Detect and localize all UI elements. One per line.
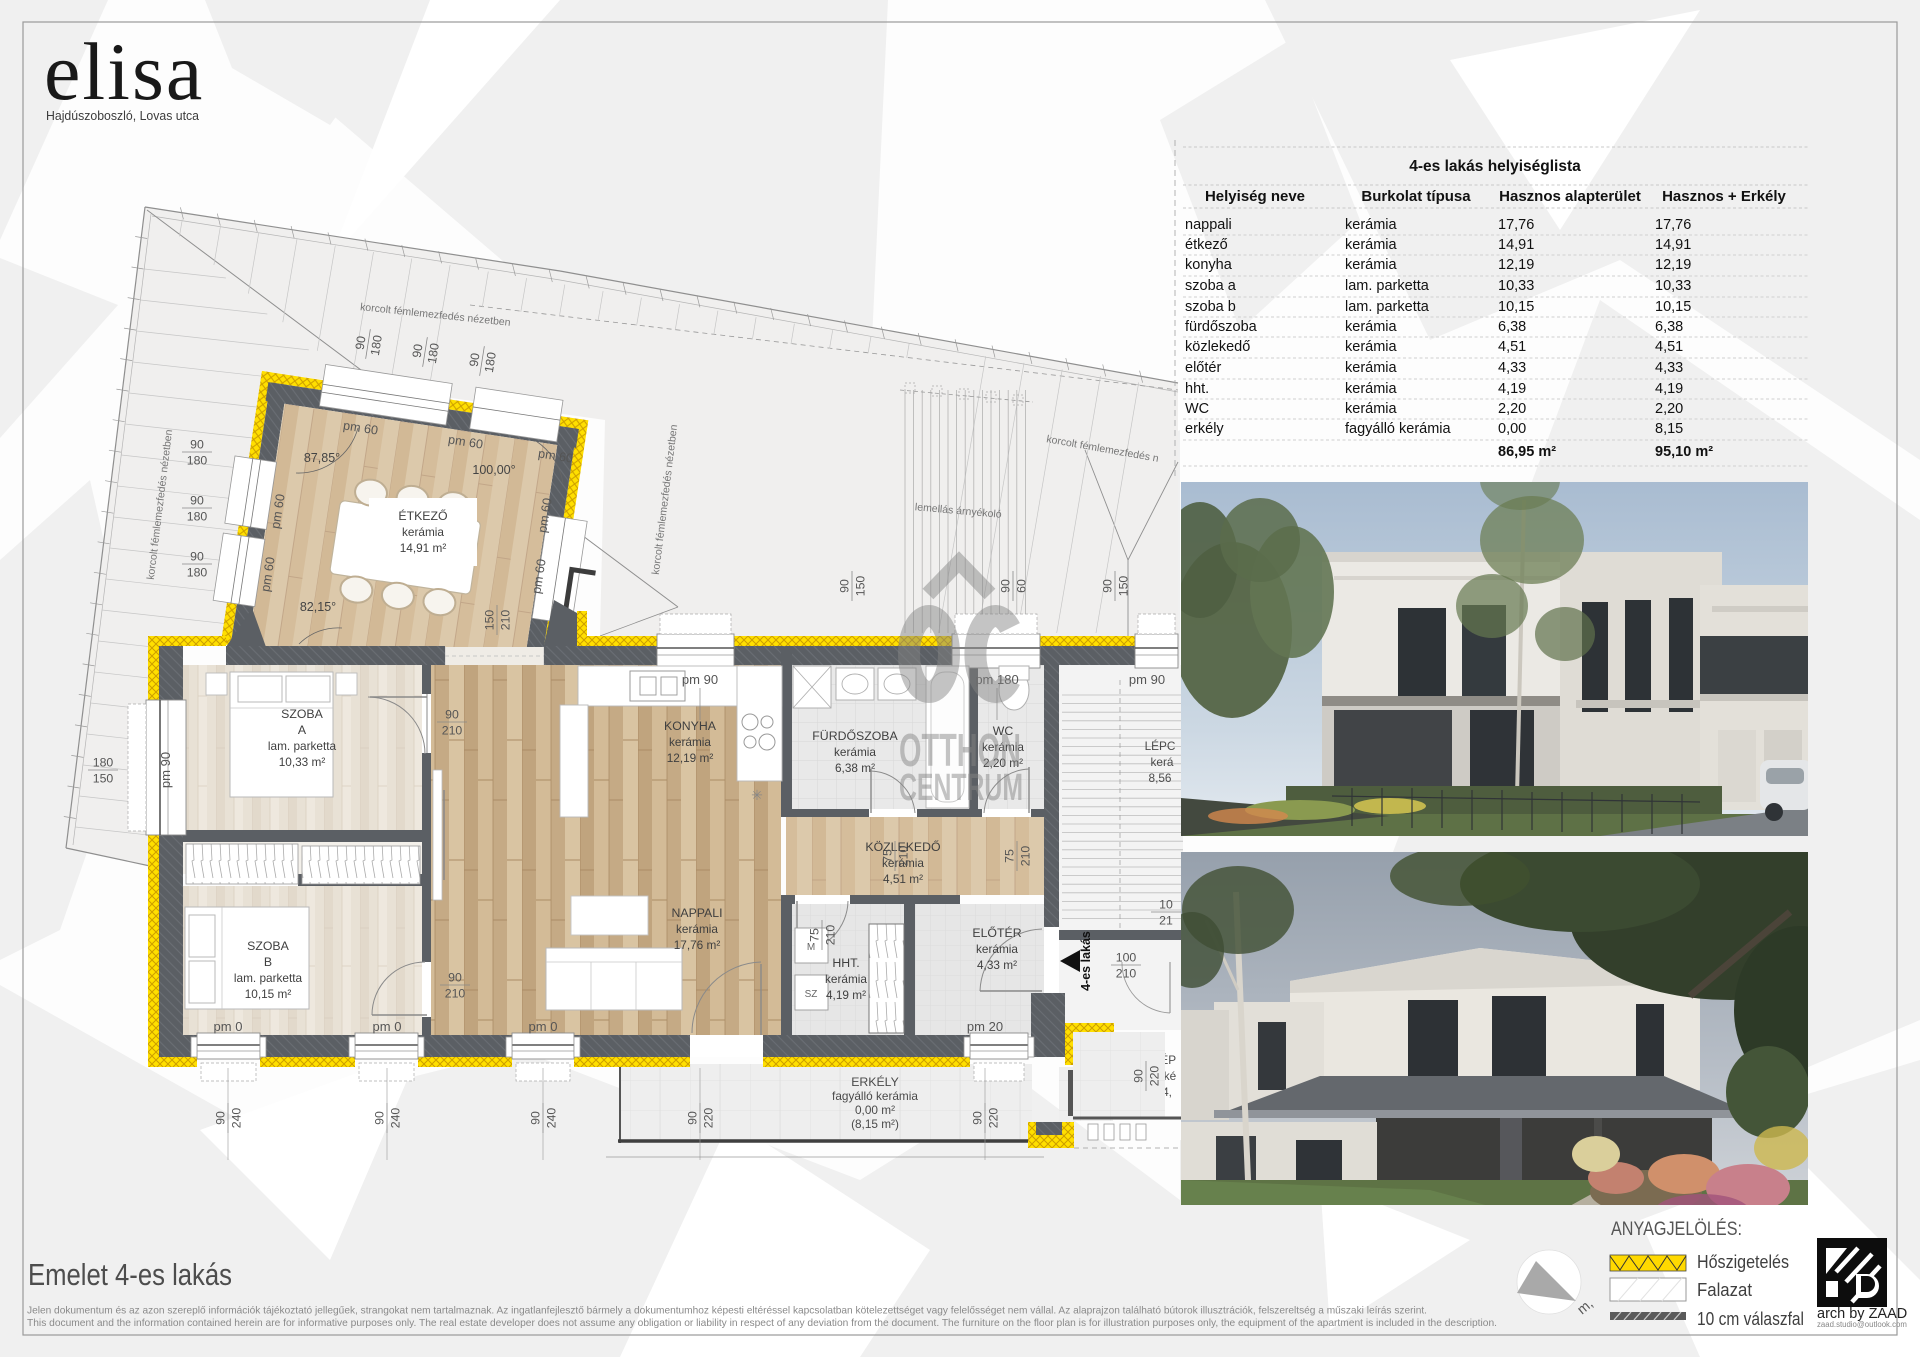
svg-text:150: 150 [854, 576, 868, 597]
svg-text:86,95 m²: 86,95 m² [1498, 444, 1556, 460]
svg-text:90: 90 [838, 579, 852, 593]
svg-text:pm 90: pm 90 [1129, 672, 1165, 687]
svg-text:WC: WC [1185, 401, 1209, 417]
svg-text:SZ: SZ [805, 989, 818, 1000]
svg-text:12,19 m²: 12,19 m² [667, 751, 714, 765]
svg-text:kerámia: kerámia [834, 745, 876, 759]
svg-text:KONYHA: KONYHA [664, 719, 717, 733]
svg-text:lam. parketta: lam. parketta [1345, 299, 1430, 315]
svg-text:lam. parketta: lam. parketta [268, 739, 337, 753]
svg-text:kerámia: kerámia [1345, 401, 1398, 417]
svg-text:kerámia: kerámia [1345, 217, 1398, 233]
svg-text:90: 90 [686, 1111, 700, 1125]
svg-text:4,33 m²: 4,33 m² [977, 958, 1017, 972]
svg-text:75: 75 [808, 928, 822, 942]
svg-text:90: 90 [971, 1111, 985, 1125]
svg-text:ANYAGJELÖLÉS:: ANYAGJELÖLÉS: [1611, 1219, 1742, 1240]
svg-text:4-es lakás helyiséglista: 4-es lakás helyiséglista [1409, 158, 1581, 175]
svg-text:14,91: 14,91 [1498, 237, 1534, 253]
svg-text:2,20: 2,20 [1655, 401, 1683, 417]
svg-text:kerá: kerá [1151, 755, 1174, 769]
svg-text:4,51 m²: 4,51 m² [883, 872, 923, 886]
svg-text:LÉPC: LÉPC [1145, 739, 1176, 753]
svg-text:étkező: étkező [1185, 237, 1228, 253]
svg-text:10: 10 [1159, 898, 1173, 912]
svg-text:közlekedő: közlekedő [1185, 339, 1250, 355]
svg-text:6,38: 6,38 [1655, 319, 1683, 335]
svg-text:4,19 m²: 4,19 m² [826, 988, 866, 1002]
svg-text:90: 90 [448, 971, 462, 985]
svg-text:82,15°: 82,15° [300, 600, 336, 614]
svg-text:90: 90 [190, 438, 204, 452]
svg-text:4,19: 4,19 [1498, 381, 1526, 397]
svg-text:Jelen dokumentum és az azon sz: Jelen dokumentum és az azon szereplő inf… [27, 1306, 1427, 1317]
svg-text:90: 90 [999, 579, 1013, 593]
svg-text:nappali: nappali [1185, 217, 1232, 233]
svg-text:10,33 m²: 10,33 m² [279, 755, 326, 769]
svg-text:14,91 m²: 14,91 m² [400, 541, 447, 555]
svg-text:220: 220 [1148, 1066, 1162, 1087]
svg-text:100,00°: 100,00° [472, 463, 515, 477]
svg-text:kerámia: kerámia [1345, 319, 1398, 335]
svg-text:elisa: elisa [44, 26, 204, 117]
svg-text:10,33: 10,33 [1655, 278, 1691, 294]
svg-text:pm 0: pm 0 [529, 1019, 558, 1034]
svg-text:0,00: 0,00 [1498, 421, 1526, 437]
svg-text:8,56: 8,56 [1149, 771, 1172, 785]
svg-text:17,76: 17,76 [1655, 217, 1691, 233]
svg-text:90: 90 [190, 550, 204, 564]
svg-text:Hajdúszoboszló, Lovas utca: Hajdúszoboszló, Lovas utca [46, 108, 200, 123]
svg-text:CENTRUM: CENTRUM [899, 767, 1023, 809]
svg-text:90: 90 [445, 708, 459, 722]
svg-text:hht.: hht. [1185, 381, 1209, 397]
svg-text:90: 90 [467, 352, 483, 368]
svg-text:2,20: 2,20 [1498, 401, 1526, 417]
svg-text:0,00 m²: 0,00 m² [855, 1103, 895, 1117]
svg-text:kerámia: kerámia [669, 735, 711, 749]
svg-text:előtér: előtér [1185, 360, 1221, 376]
svg-text:220: 220 [987, 1108, 1001, 1129]
svg-text:fagyálló kerámia: fagyálló kerámia [1345, 421, 1452, 437]
svg-text:pm 90: pm 90 [158, 752, 173, 788]
svg-text:210: 210 [442, 724, 463, 738]
svg-text:240: 240 [389, 1108, 403, 1129]
svg-text:180: 180 [93, 756, 114, 770]
svg-text:210: 210 [445, 987, 466, 1001]
svg-text:180: 180 [187, 566, 208, 580]
svg-text:210: 210 [1019, 846, 1033, 867]
svg-text:75: 75 [881, 849, 895, 863]
svg-text:NAPPALI: NAPPALI [671, 906, 722, 920]
svg-text:17,76 m²: 17,76 m² [674, 938, 721, 952]
svg-text:90: 90 [410, 343, 426, 359]
svg-text:Helyiség neve: Helyiség neve [1205, 188, 1305, 205]
svg-text:A: A [298, 723, 307, 737]
svg-text:210: 210 [897, 846, 911, 867]
svg-text:12,19: 12,19 [1498, 257, 1534, 273]
svg-text:Hasznos alapterület: Hasznos alapterület [1499, 188, 1641, 205]
svg-text:pm 0: pm 0 [214, 1019, 243, 1034]
svg-text:✳: ✳ [751, 787, 763, 803]
svg-text:10,33: 10,33 [1498, 278, 1534, 294]
svg-text:Hasznos + Erkély: Hasznos + Erkély [1662, 188, 1786, 205]
svg-text:180: 180 [187, 454, 208, 468]
svg-text:szoba b: szoba b [1185, 299, 1236, 315]
svg-text:Hőszigetelés: Hőszigetelés [1697, 1252, 1789, 1272]
svg-text:210: 210 [499, 610, 513, 631]
svg-text:87,85°: 87,85° [304, 451, 340, 465]
svg-text:kerámia: kerámia [1345, 381, 1398, 397]
svg-text:210: 210 [1116, 967, 1137, 981]
svg-text:ELŐTÉR: ELŐTÉR [972, 925, 1021, 940]
svg-text:90: 90 [1101, 579, 1115, 593]
svg-text:4,33: 4,33 [1498, 360, 1526, 376]
svg-text:SZOBA: SZOBA [281, 707, 323, 721]
svg-text:75: 75 [1003, 849, 1017, 863]
svg-text:21: 21 [1159, 914, 1173, 928]
svg-text:konyha: konyha [1185, 257, 1233, 273]
svg-text:erkély: erkély [1185, 421, 1224, 437]
svg-text:4,51: 4,51 [1498, 339, 1526, 355]
svg-text:6,38 m²: 6,38 m² [835, 761, 875, 775]
svg-text:6,38: 6,38 [1498, 319, 1526, 335]
svg-text:SZOBA: SZOBA [247, 939, 289, 953]
svg-text:10,15: 10,15 [1655, 299, 1691, 315]
svg-text:pm 90: pm 90 [682, 672, 718, 687]
svg-text:150: 150 [483, 610, 497, 631]
svg-text:210: 210 [824, 925, 838, 946]
svg-text:4,33: 4,33 [1655, 360, 1683, 376]
svg-text:ÉTKEZŐ: ÉTKEZŐ [398, 508, 447, 523]
svg-text:90: 90 [214, 1111, 228, 1125]
svg-text:Falazat: Falazat [1697, 1280, 1752, 1300]
svg-text:10,15 m²: 10,15 m² [245, 987, 292, 1001]
svg-text:90: 90 [373, 1111, 387, 1125]
svg-text:HHT.: HHT. [832, 956, 859, 970]
svg-text:17,76: 17,76 [1498, 217, 1534, 233]
svg-text:4,51: 4,51 [1655, 339, 1683, 355]
svg-text:kerámia: kerámia [976, 942, 1018, 956]
svg-text:kerámia: kerámia [1345, 339, 1398, 355]
svg-text:240: 240 [545, 1108, 559, 1129]
svg-text:4-es lakás: 4-es lakás [1079, 931, 1093, 991]
svg-text:90: 90 [190, 494, 204, 508]
svg-text:4,19: 4,19 [1655, 381, 1683, 397]
svg-text:B: B [264, 955, 272, 969]
svg-text:150: 150 [93, 772, 114, 786]
svg-text:60: 60 [1015, 579, 1029, 593]
svg-text:fagyálló kerámia: fagyálló kerámia [832, 1089, 918, 1103]
svg-text:8,15: 8,15 [1655, 421, 1683, 437]
svg-text:Emelet 4-es lakás: Emelet 4-es lakás [28, 1257, 232, 1292]
svg-text:100: 100 [1116, 951, 1137, 965]
svg-text:Burkolat típusa: Burkolat típusa [1361, 188, 1471, 205]
svg-text:10 cm válaszfal: 10 cm válaszfal [1697, 1309, 1804, 1329]
svg-text:ERKÉLY: ERKÉLY [851, 1074, 899, 1089]
svg-text:kerámia: kerámia [402, 525, 444, 539]
svg-text:lam. parketta: lam. parketta [1345, 278, 1430, 294]
svg-text:12,19: 12,19 [1655, 257, 1691, 273]
svg-text:pm 20: pm 20 [967, 1019, 1003, 1034]
svg-text:14,91: 14,91 [1655, 237, 1691, 253]
svg-text:220: 220 [702, 1108, 716, 1129]
svg-text:10,15: 10,15 [1498, 299, 1534, 315]
svg-text:FÜRDŐSZOBA: FÜRDŐSZOBA [812, 728, 898, 743]
svg-text:90: 90 [529, 1111, 543, 1125]
svg-text:kerámia: kerámia [1345, 237, 1398, 253]
svg-text:90: 90 [1132, 1069, 1146, 1083]
svg-text:150: 150 [1117, 576, 1131, 597]
svg-text:240: 240 [230, 1108, 244, 1129]
svg-text:M: M [807, 942, 815, 953]
svg-text:szoba a: szoba a [1185, 278, 1237, 294]
svg-text:95,10 m²: 95,10 m² [1655, 444, 1713, 460]
svg-text:zaad.studio@outlook.com: zaad.studio@outlook.com [1817, 1320, 1907, 1329]
svg-text:ké: ké [1164, 1069, 1177, 1083]
svg-text:(8,15 m²): (8,15 m²) [851, 1117, 899, 1131]
svg-text:kerámia: kerámia [1345, 360, 1398, 376]
svg-text:90: 90 [353, 335, 369, 351]
svg-text:kerámia: kerámia [1345, 257, 1398, 273]
svg-text:kerámia: kerámia [825, 972, 867, 986]
svg-text:pm 0: pm 0 [373, 1019, 402, 1034]
svg-text:fürdőszoba: fürdőszoba [1185, 319, 1258, 335]
svg-text:lam. parketta: lam. parketta [234, 971, 303, 985]
svg-text:kerámia: kerámia [676, 922, 718, 936]
svg-text:180: 180 [187, 510, 208, 524]
svg-text:This document and the informat: This document and the information contai… [27, 1318, 1497, 1329]
